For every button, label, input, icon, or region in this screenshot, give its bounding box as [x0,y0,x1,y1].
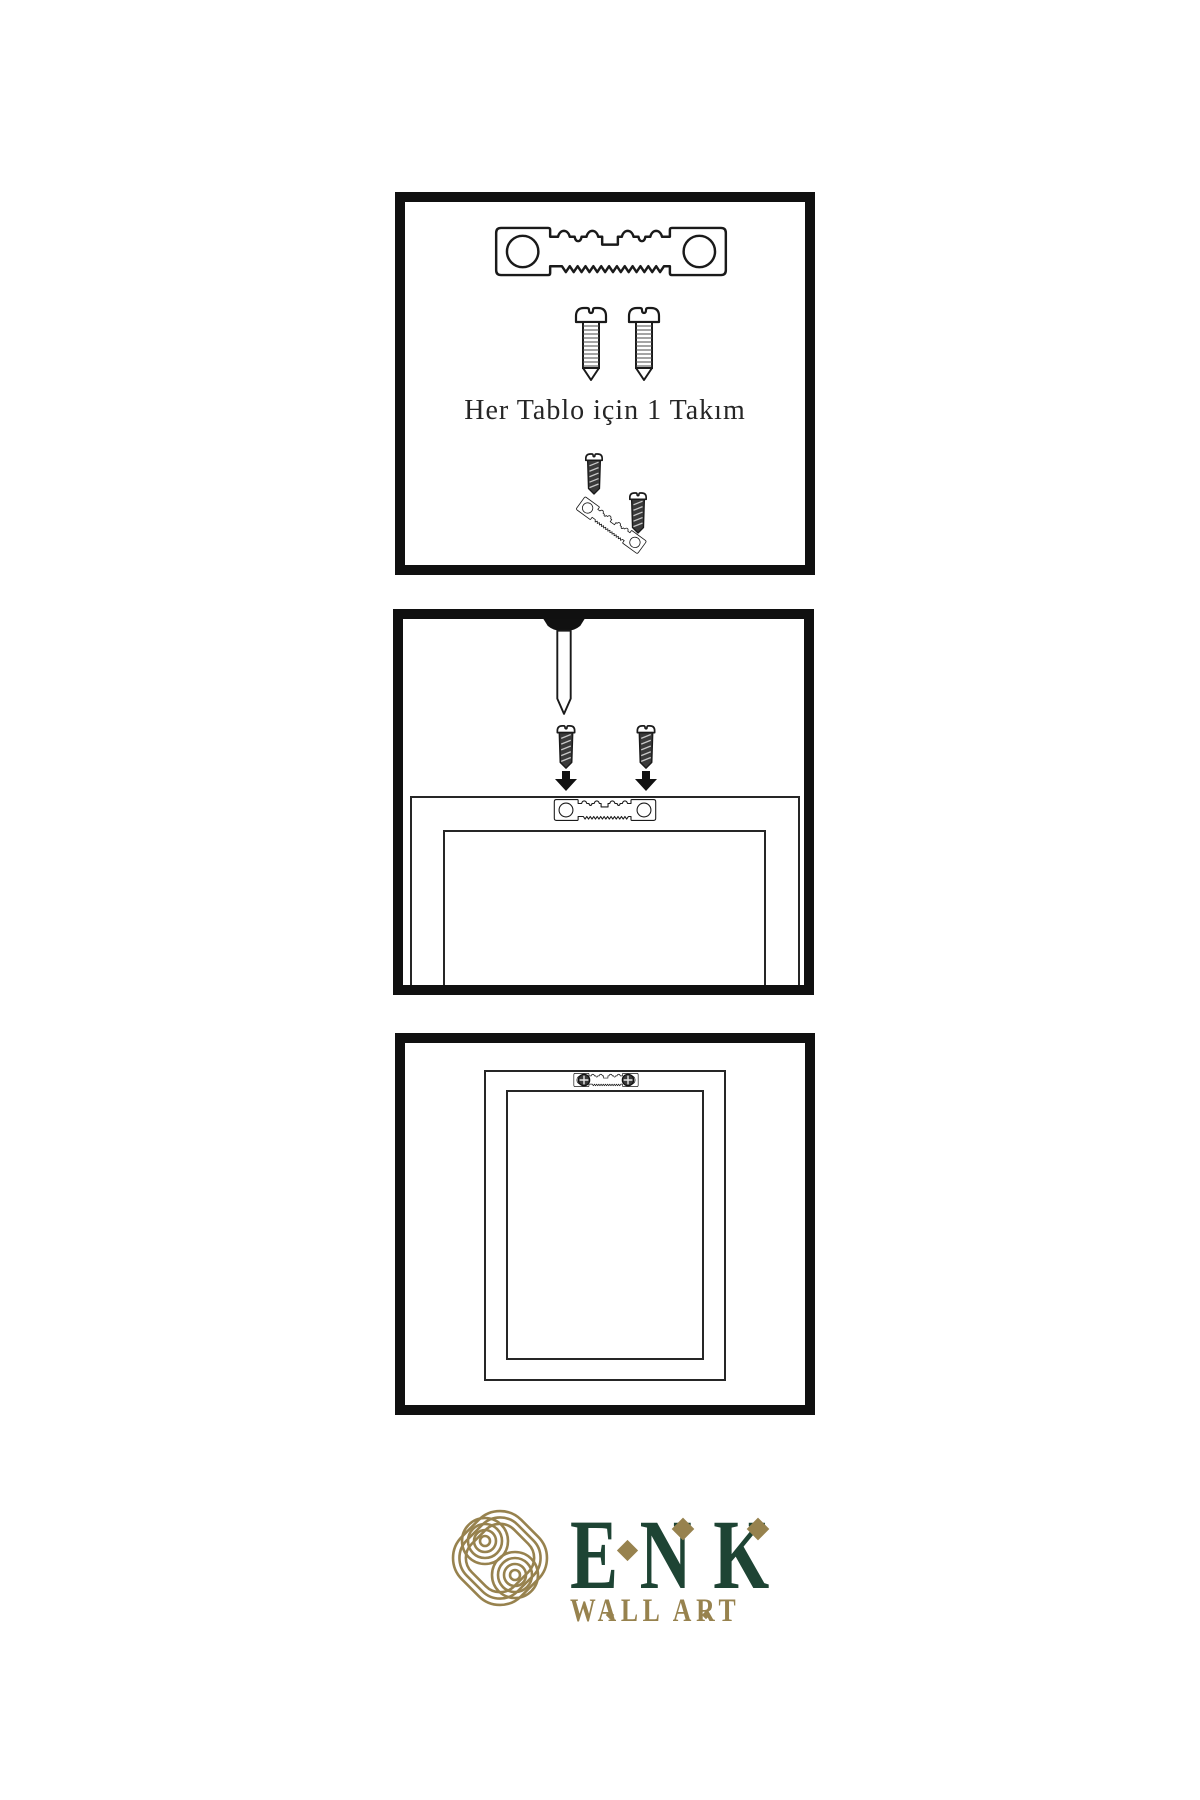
brand-subtitle: WALL ART [570,1595,740,1628]
frame-back-inner [506,1090,704,1360]
wall-nail-icon [542,617,586,719]
arrow-down-icon [555,771,577,791]
arrow-down-icon [635,771,657,791]
screw-icon [573,305,609,383]
mounted-sawtooth-hanger-icon [573,1070,639,1090]
screw-icon [635,724,657,770]
sawtooth-hanger-icon [553,797,657,823]
sawtooth-hanger-icon [492,225,730,278]
panel-hanging-result [395,1033,815,1415]
panel-hardware-kit: Her Tablo için 1 Takım [395,192,815,575]
screw-icon [626,305,662,383]
frame-back-inner [443,830,766,988]
panel-wall-installation [393,609,814,995]
screw-into-tilted-hanger-icon [572,448,670,556]
kit-caption: Her Tablo için 1 Takım [405,395,805,427]
page: Her Tablo için 1 Takım [0,0,1200,1800]
screw-icon [555,724,577,770]
knot-logo-icon [440,1488,560,1628]
